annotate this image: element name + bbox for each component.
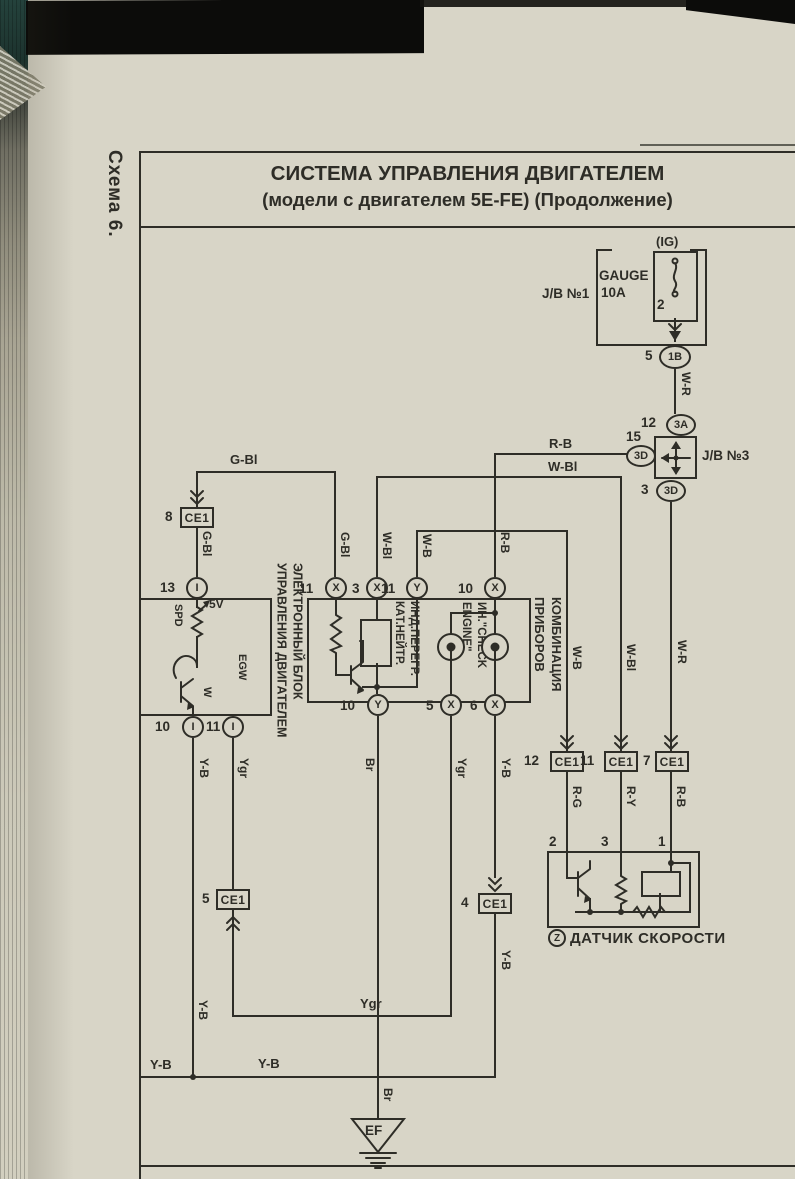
check-engine-lamp-label: ИН."CHECKENGINE" [458,602,488,700]
element: I [195,582,198,594]
wire [376,686,378,694]
cluster-pin-10-x: X [484,577,506,599]
connector-number: 7 [643,753,651,768]
element: X [447,699,454,711]
wire-label-gbl: G-Bl [200,531,214,556]
wire-label-rg: R-G [570,786,584,808]
element: Z [554,933,560,944]
page-title: СИСТЕМА УПРАВЛЕНИЯ ДВИГАТЕЛЕМ [140,162,795,186]
frame-top [140,151,795,153]
connector-1b: 1B [659,345,691,369]
connector-3d-bottom: 3D [656,480,686,502]
pin-number: 6 [470,698,478,713]
wire-label-wr: W-R [675,640,689,664]
element: Y [374,699,381,711]
wire-label-wbl: W-Bl [624,644,638,671]
wire-label-yb: Y-B [196,1000,210,1020]
wire-ygr-upper [232,738,234,889]
element: ИНД.ПЕРЕГР. [406,601,421,701]
element: CE1 [185,511,210,525]
ecu-spd-label: SPD [172,604,184,627]
wire [674,318,676,342]
connector-number: 5 [645,348,653,363]
pin-number: 11 [206,719,220,734]
speed-sensor-label: ДАТЧИК СКОРОСТИ [570,930,726,947]
indicator1-label: ИНД.ПЕРЕГР.КАТ.НЕЙТР. [391,601,421,701]
wire-wbl-drop [376,476,378,577]
element: I [231,721,234,733]
pin-number: 11 [299,581,313,596]
ecu-5v-label: 5V [209,597,224,611]
wire-label-rb: R-B [498,532,512,553]
connector-ce1: CE1 [180,507,214,528]
wire [670,862,691,864]
wire-label-yb: Y-B [197,758,211,778]
element: Y [413,582,420,594]
jb1-bracket [596,250,598,346]
connector-ce1: CE1 [216,889,250,910]
ground-ef-label: EF [365,1123,382,1138]
element: 1B [668,351,682,363]
sensor-pin-number: 3 [601,834,609,849]
frame-bottom [140,1165,795,1167]
wire-rb-vertical [494,453,496,577]
cluster-pin-6-x: X [484,694,506,716]
wire-label-yb: Y-B [258,1056,280,1071]
wire-rg [566,772,568,852]
wire-gbl-to-ecu [196,528,198,577]
wire-yb-from-6x [494,716,496,878]
wire-rb-horizontal [496,453,628,455]
wire [659,893,661,912]
wire-yb-ecu [192,738,194,1078]
element: ИН."CHECK [473,602,488,700]
wire-wr [674,369,676,414]
wire-wb-drop [416,530,418,577]
cluster-pin-5-x: X [440,694,462,716]
sensor-element [641,871,681,897]
wire [192,706,194,716]
ecu-w-label: W [201,687,213,697]
element: 3D [664,485,678,497]
element: УПРАВЛЕНИЯ ДВИГАТЕЛЕМ [273,563,289,768]
ecu-pin-11-i: I [222,716,244,738]
element: CE1 [609,755,634,769]
sensor-pin-number: 2 [549,834,557,849]
wire-label-gbl: G-Bl [230,452,257,467]
wire [335,599,337,615]
wire-label-yb: Y-B [499,758,513,778]
connector-number: 12 [641,415,656,430]
scan-black-bar [26,0,424,55]
wire-label-wbl: W-Bl [548,459,577,474]
wire-gbl-drop [196,471,198,507]
wire-label-rb: R-B [549,436,572,451]
wire-label-gbl: G-Bl [338,532,352,557]
wire-label-ygr: Ygr [237,758,251,778]
connector-ce1: CE1 [478,893,512,914]
element: 3A [674,419,688,431]
element: X [491,582,498,594]
wire-label-rb: R-B [674,786,688,807]
book-spine-edge [0,0,28,1179]
wire-br [377,716,379,1120]
fuse-rating: 10A [601,285,626,300]
connector-number: 8 [165,509,173,524]
wire [575,911,691,913]
element: CE1 [660,755,685,769]
frame-top-outer [640,144,795,146]
wire [450,612,452,634]
schema-number-label: Схема 6. [103,150,125,310]
wire-ygr-lower [232,910,234,1017]
sensor-pin-number: 1 [658,834,666,849]
connector-3d-left: 3D [626,445,656,467]
page-curve-shadow [28,0,74,1179]
jb1-bracket [596,344,707,346]
wire [566,853,568,878]
element: 3D [634,450,648,462]
jb1-bracket [596,249,612,251]
cluster-pin-10-y: Y [367,694,389,716]
jb3-label: J/B №3 [702,448,749,463]
jb1-label: J/B №1 [542,286,589,301]
fuse-name: GAUGE [599,268,649,283]
wire-ygr-from-5x [450,716,452,1017]
wire-yb-lower [494,914,496,1077]
ecu-pin-10-i: I [182,716,204,738]
cluster-pin-11-y: Y [406,577,428,599]
wire-ry [620,772,622,852]
wire [620,904,622,913]
pin-number: 3 [352,581,360,596]
element: X [373,582,380,594]
wire-label-wbl: W-Bl [380,532,394,559]
wire [196,636,198,668]
pin-number: 10 [155,719,170,734]
element: CE1 [221,893,246,907]
wire [335,674,350,676]
wire [196,599,198,608]
cluster-title: КОМБИНАЦИЯПРИБОРОВ [530,597,564,703]
scanned-wiring-diagram-page: Схема 6. СИСТЕМА УПРАВЛЕНИЯ ДВИГАТЕЛЕМ (… [0,0,795,1179]
jb1-bracket [705,250,707,346]
connector-number: 3 [641,482,649,497]
wire-label-wr: W-R [679,372,693,396]
wire-gbl-vertical [334,471,336,577]
connector-ce1: CE1 [550,751,584,772]
pin-number: 13 [160,580,175,595]
element: CE1 [483,897,508,911]
wire-label-ygr: Ygr [360,996,382,1011]
element [489,878,501,891]
ecu-box [139,598,272,716]
wire-label-ygr: Ygr [455,758,469,778]
cluster-pin-11-x: X [325,577,347,599]
wire [494,612,496,634]
wire-label-yb: Y-B [499,950,513,970]
wire-label-wb: W-B [420,534,434,558]
wire [335,653,337,675]
element: X [491,699,498,711]
wire [376,599,378,620]
wire-wb-horizontal [416,530,568,532]
wire-label-wb: W-B [570,646,584,670]
cluster-gauge-element [360,619,392,667]
fuse-pin-number: 2 [657,297,665,312]
wire-label-yb: Y-B [150,1057,172,1072]
wire [450,660,452,694]
wire-label-ry: R-Y [624,786,638,807]
wire-rb-sensor [670,772,672,852]
connector-number: 5 [202,891,210,906]
connector-number: 4 [461,895,469,910]
connector-number: 15 [626,429,641,444]
wire-wbl-horizontal [376,476,622,478]
ecu-pin-13-i: I [186,577,208,599]
element: КАТ.НЕЙТР. [391,601,406,701]
element: ENGINE" [458,602,473,700]
wire-wb-vertical [566,530,568,752]
title-underline [140,226,795,228]
wire [689,862,691,913]
page-subtitle: (модели с двигателем 5E-FE) (Продолжение… [140,189,795,211]
element: ПРИБОРОВ [530,597,547,703]
wire-label-br: Br [381,1088,395,1101]
ecu-egw-label: EGW [236,654,248,680]
wire-label-br: Br [363,758,377,771]
pin-number: 11 [381,581,395,596]
connector-number: 11 [580,753,594,768]
connector-ce1: CE1 [655,751,689,772]
connector-number: 12 [524,753,539,768]
wire [376,663,378,687]
element: I [191,721,194,733]
wire [566,877,578,879]
pin-number: 10 [340,698,355,713]
pin-number: 10 [458,581,473,596]
wire-yb-horizontal [140,1076,496,1078]
sensor-circle-z: Z [548,929,566,947]
pin-number: 5 [426,698,434,713]
wire-gbl-horizontal [196,471,336,473]
scan-corner-shadow [686,0,795,24]
jb3-box [654,436,697,479]
connector-ce1: CE1 [604,751,638,772]
wire-ygr-horizontal [232,1015,452,1017]
element: CE1 [555,755,580,769]
wire-wbl-vertical [620,476,622,752]
ig-label: (IG) [656,234,678,249]
wire-wr-right [670,502,672,752]
wire [620,853,622,876]
element: КОМБИНАЦИЯ [547,597,564,703]
wire [494,660,496,694]
element: X [332,582,339,594]
connector-3a: 3A [666,414,696,436]
